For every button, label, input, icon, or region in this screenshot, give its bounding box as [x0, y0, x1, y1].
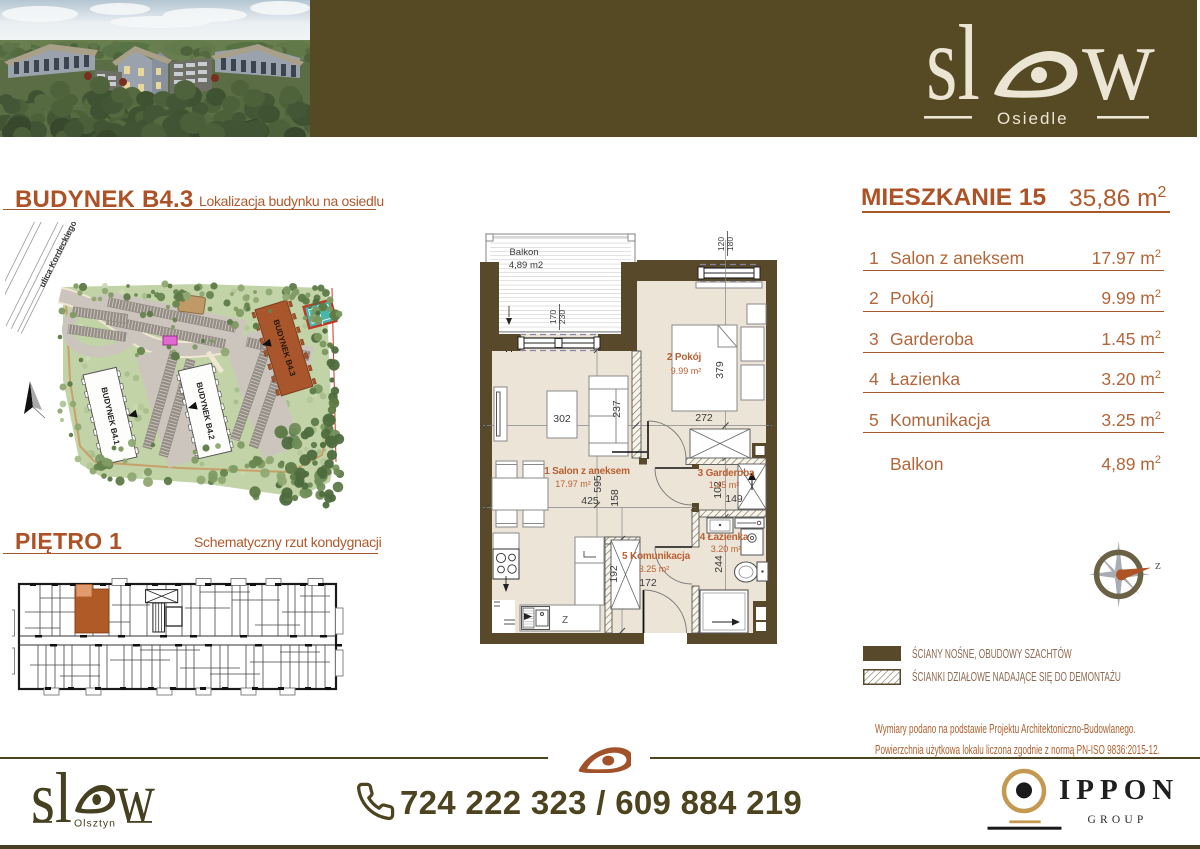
svg-text:1.45 m²: 1.45 m²: [709, 480, 740, 490]
svg-text:3 Garderoba: 3 Garderoba: [698, 468, 755, 479]
svg-text:Z: Z: [562, 615, 568, 626]
svg-text:sl: sl: [926, 10, 980, 123]
svg-text:3.20 m²: 3.20 m²: [711, 544, 742, 554]
svg-text:4 Łazienka: 4 Łazienka: [700, 532, 749, 543]
svg-text:302: 302: [553, 413, 571, 425]
svg-text:230: 230: [557, 310, 567, 324]
svg-text:237: 237: [611, 400, 623, 418]
svg-text:9.99 m²: 9.99 m²: [671, 366, 702, 376]
svg-text:1 Salon z aneksem: 1 Salon z aneksem: [544, 466, 630, 477]
svg-text:ulica Kordeckiego: ulica Kordeckiego: [37, 222, 79, 289]
svg-text:17.97 m²: 17.97 m²: [555, 479, 591, 489]
svg-text:379: 379: [714, 361, 726, 379]
svg-text:w: w: [1082, 10, 1155, 123]
svg-text:3.25 m²: 3.25 m²: [639, 564, 670, 574]
svg-text:158: 158: [609, 489, 621, 507]
svg-text:Osiedle: Osiedle: [997, 109, 1069, 128]
svg-text:192: 192: [608, 565, 620, 583]
svg-text:172: 172: [639, 577, 657, 589]
svg-text:GROUP: GROUP: [1088, 814, 1148, 826]
svg-text:149: 149: [725, 493, 743, 505]
svg-text:Balkon: Balkon: [509, 247, 538, 258]
svg-text:z: z: [1155, 557, 1161, 572]
svg-text:244: 244: [713, 555, 725, 573]
svg-text:2 Pokój: 2 Pokój: [667, 352, 702, 363]
svg-text:595: 595: [592, 475, 604, 493]
svg-text:sl: sl: [31, 762, 72, 834]
svg-text:272: 272: [695, 412, 713, 424]
svg-text:w: w: [116, 762, 155, 834]
svg-text:4,89 m2: 4,89 m2: [509, 260, 543, 271]
svg-text:IPPON: IPPON: [1059, 774, 1179, 806]
svg-text:5 Komunikacja: 5 Komunikacja: [622, 551, 691, 562]
svg-text:Olsztyn: Olsztyn: [74, 818, 116, 830]
svg-text:180: 180: [725, 237, 735, 251]
svg-text:425: 425: [581, 495, 599, 507]
